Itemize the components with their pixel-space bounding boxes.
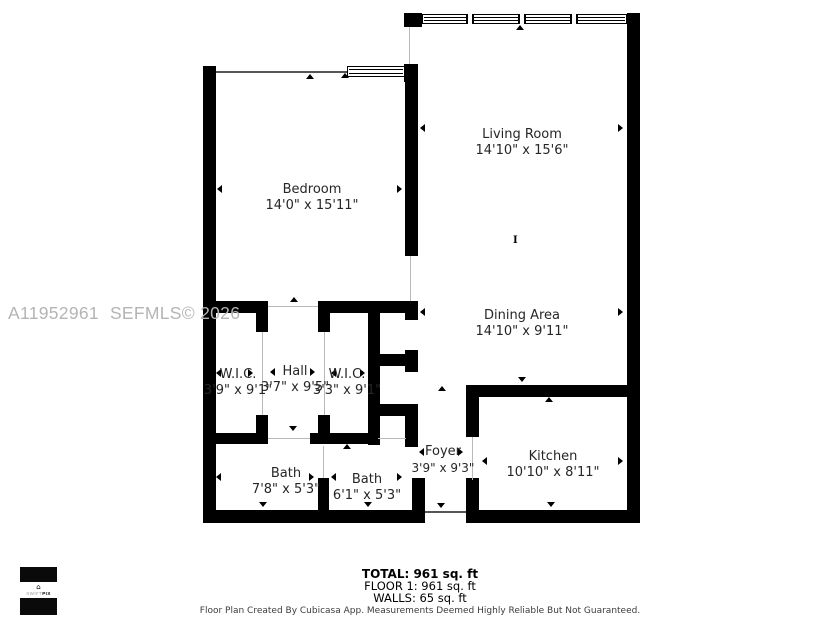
scan-point-icon: I <box>513 235 518 246</box>
wall-segment <box>256 313 268 332</box>
dimension-marker <box>437 503 445 508</box>
wall-segment <box>466 478 479 511</box>
wall-segment <box>203 66 216 523</box>
room-name: Bedroom <box>266 182 359 198</box>
window-mullion <box>466 14 474 24</box>
logo-brand-text: SWIFTPIX <box>26 591 50 596</box>
door-opening <box>409 27 410 64</box>
wall-segment <box>412 478 425 511</box>
room-label-wic-right: W.I.C. 3'3" x 9'1" <box>313 367 381 399</box>
logo-swift-text: SWIFT <box>26 591 42 596</box>
room-label-bath-left: Bath 7'8" x 5'3" <box>252 466 320 498</box>
room-name: Dining Area <box>476 308 569 324</box>
door-opening <box>410 256 411 301</box>
wall-segment <box>318 301 418 313</box>
dimension-marker <box>290 297 298 302</box>
room-label-bath-right: Bath 6'1" x 5'3" <box>333 472 401 504</box>
room-dimensions: 14'10" x 9'11" <box>476 324 569 340</box>
dimension-marker <box>618 457 623 465</box>
wall-segment <box>466 510 640 523</box>
room-label-living-room: Living Room 14'10" x 15'6" <box>476 127 569 159</box>
house-icon: ⌂ <box>36 584 40 591</box>
wall-segment <box>405 64 418 256</box>
room-name: Living Room <box>476 127 569 143</box>
dimension-marker <box>618 308 623 316</box>
room-dimensions: 14'0" x 15'11" <box>266 198 359 214</box>
window-mullion <box>570 14 578 24</box>
window-pane <box>349 69 403 74</box>
entry-door-opening <box>425 511 466 513</box>
wall-segment <box>310 433 378 444</box>
wall-segment <box>466 385 640 397</box>
room-name: Bath <box>252 466 320 482</box>
wall-segment <box>318 415 330 435</box>
wall-segment <box>203 433 268 444</box>
walls-area: WALLS: 65 sq. ft <box>362 592 478 604</box>
dimension-marker <box>518 377 526 382</box>
door-opening <box>268 306 318 307</box>
wall-segment <box>318 313 330 332</box>
dimension-marker <box>547 502 555 507</box>
door-opening <box>378 438 406 439</box>
dimension-marker <box>341 73 349 78</box>
room-label-foyer: Foyer 3'9" x 9'3" <box>412 444 475 476</box>
wall-segment <box>405 404 418 447</box>
wall-segment <box>256 415 268 435</box>
room-label-dining-area: Dining Area 14'10" x 9'11" <box>476 308 569 340</box>
wall-segment <box>203 510 425 523</box>
room-dimensions: 6'1" x 5'3" <box>333 488 401 504</box>
room-label-bedroom: Bedroom 14'0" x 15'11" <box>266 182 359 214</box>
window-mullion <box>518 14 526 24</box>
thin-wall <box>216 71 347 73</box>
room-dimensions: 14'10" x 15'6" <box>476 143 569 159</box>
mls-watermark: A11952961SEFMLS© 2026 <box>8 303 240 324</box>
logo-band: ⌂ SWIFTPIX <box>20 582 57 598</box>
door-opening <box>268 438 310 439</box>
dimension-marker <box>397 185 402 193</box>
room-dimensions: 10'10" x 8'11" <box>507 465 600 481</box>
dimension-marker <box>420 124 425 132</box>
room-dimensions: 7'8" x 5'3" <box>252 482 320 498</box>
room-label-kitchen: Kitchen 10'10" x 8'11" <box>507 449 600 481</box>
dimension-marker <box>516 25 524 30</box>
mls-number: A11952961 <box>8 303 99 323</box>
mls-source: SEFMLS© 2026 <box>110 303 240 323</box>
dimension-marker <box>306 74 314 79</box>
dimension-marker <box>420 308 425 316</box>
wall-segment <box>404 13 422 27</box>
wall-segment <box>627 13 640 523</box>
wall-segment <box>466 385 479 437</box>
dimension-marker <box>289 426 297 431</box>
logo-pix-text: PIX <box>42 591 50 596</box>
floor-plan: I Living Room 14'10" x 15'6" Bedroom 14'… <box>0 0 840 630</box>
swiftpix-logo: ⌂ SWIFTPIX <box>20 567 57 615</box>
dimension-marker <box>438 386 446 391</box>
dimension-marker <box>482 457 487 465</box>
window <box>347 66 405 77</box>
room-dimensions: 3'3" x 9'1" <box>313 383 381 399</box>
room-name: Bath <box>333 472 401 488</box>
dimension-marker <box>618 124 623 132</box>
room-dimensions: 3'9" x 9'3" <box>412 460 475 476</box>
dimension-marker <box>217 185 222 193</box>
door-opening <box>323 446 324 478</box>
wall-segment <box>405 313 418 320</box>
room-name: Kitchen <box>507 449 600 465</box>
wall-segment <box>405 350 418 372</box>
dimension-marker <box>343 444 351 449</box>
room-name: Foyer <box>412 444 475 460</box>
room-name: W.I.C. <box>313 367 381 383</box>
dimension-marker <box>259 502 267 507</box>
area-summary: TOTAL: 961 sq. ft FLOOR 1: 961 sq. ft WA… <box>362 568 478 604</box>
disclaimer-text: Floor Plan Created By Cubicasa App. Meas… <box>200 606 640 616</box>
dimension-marker <box>216 473 221 481</box>
dimension-marker <box>545 397 553 402</box>
